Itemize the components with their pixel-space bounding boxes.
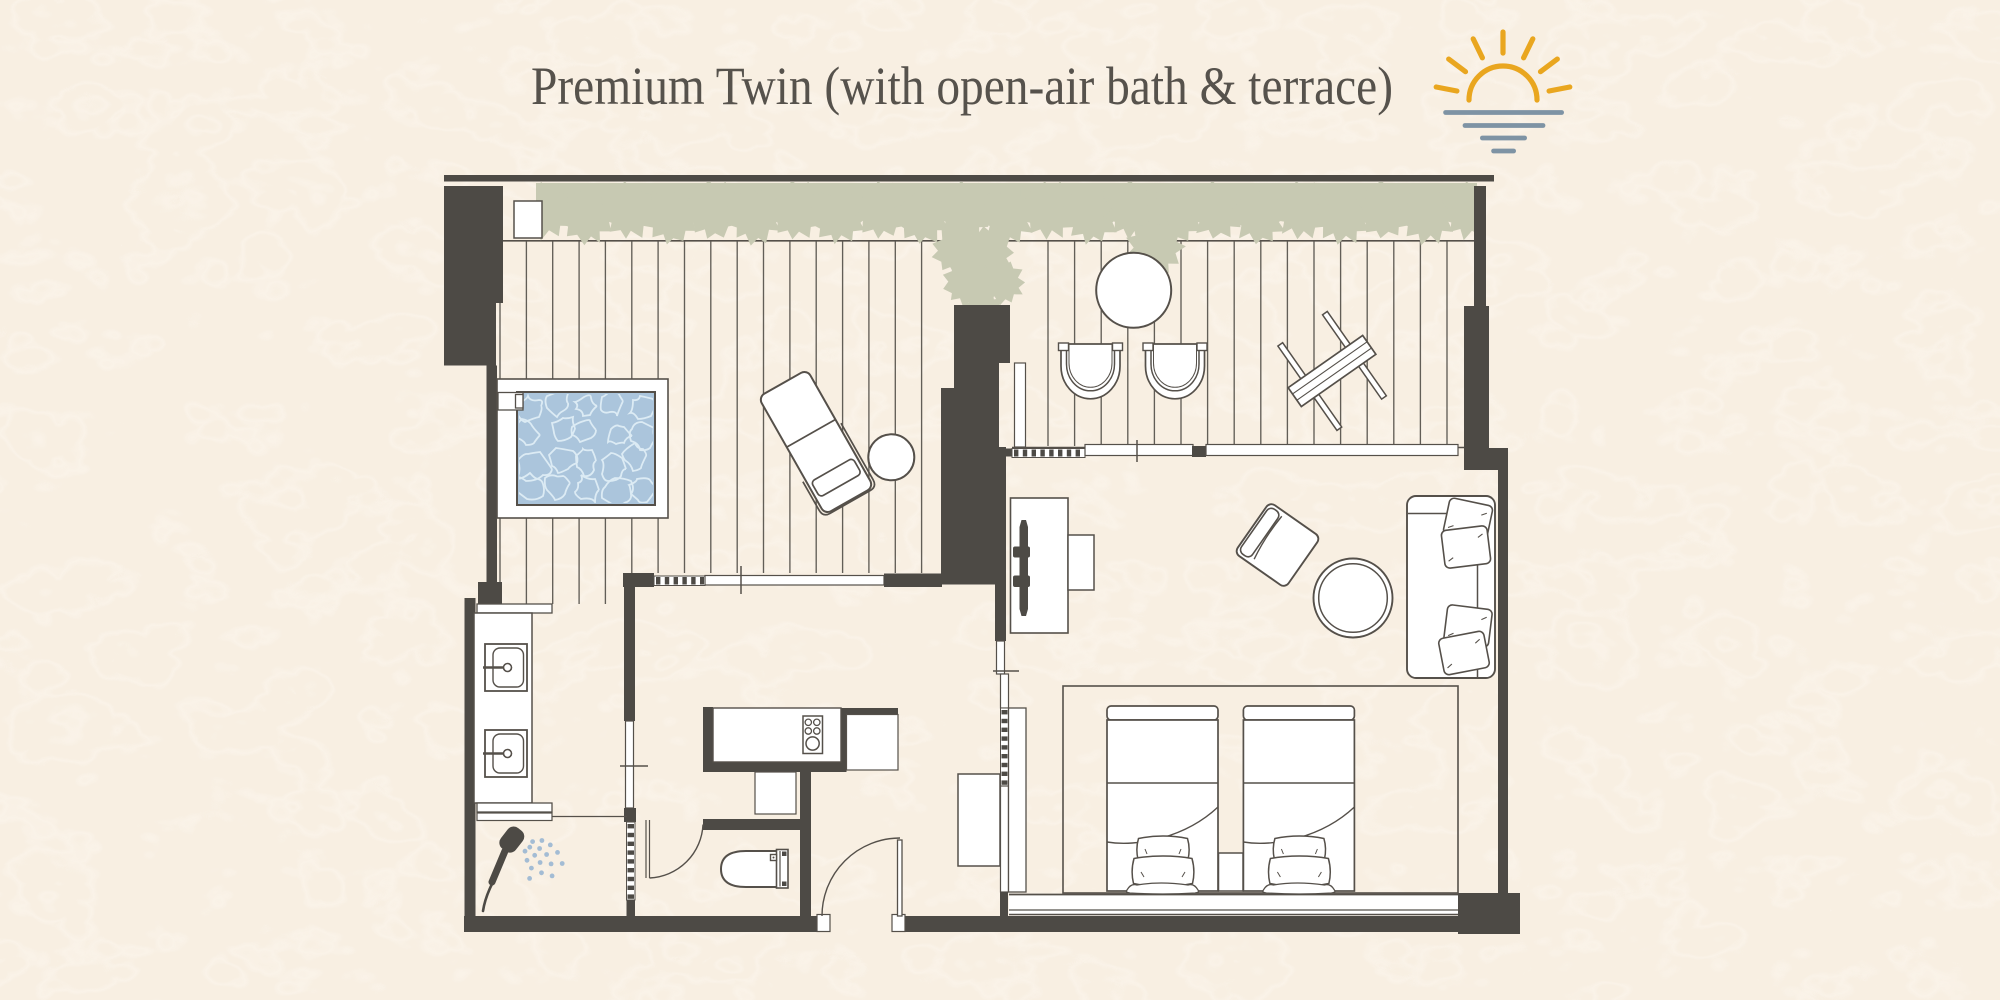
svg-text:Premium Twin (with open-air ba: Premium Twin (with open-air bath & terra… [531, 56, 1393, 116]
